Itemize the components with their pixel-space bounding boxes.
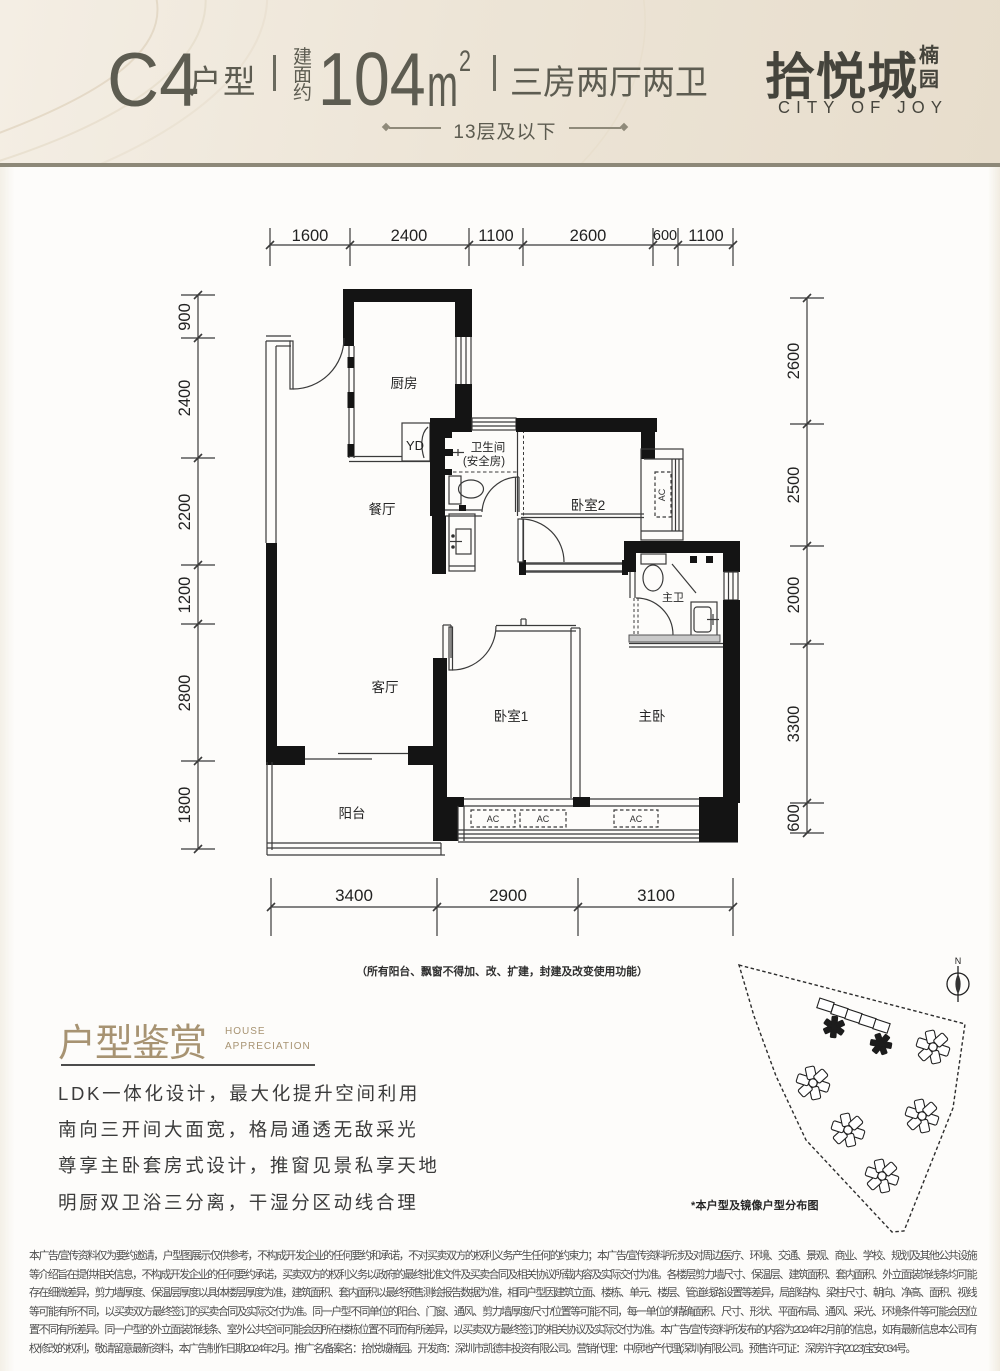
svg-text:AC: AC xyxy=(657,488,667,501)
svg-text:600: 600 xyxy=(785,804,803,832)
svg-text:1100: 1100 xyxy=(688,227,723,245)
svg-text:900: 900 xyxy=(176,303,194,331)
svg-text:2200: 2200 xyxy=(176,494,194,531)
svg-text:600: 600 xyxy=(653,228,677,244)
svg-text:1200: 1200 xyxy=(176,577,194,614)
svg-text:客厅: 客厅 xyxy=(372,679,399,695)
svg-text:2900: 2900 xyxy=(489,886,527,905)
svg-text:主卫: 主卫 xyxy=(662,591,684,604)
svg-text:3400: 3400 xyxy=(335,886,373,905)
svg-text:AC: AC xyxy=(487,814,500,824)
svg-text:阳台: 阳台 xyxy=(339,806,366,821)
svg-text:YD: YD xyxy=(406,438,424,453)
svg-text:1100: 1100 xyxy=(478,227,513,245)
svg-text:N: N xyxy=(955,956,962,966)
svg-text:3300: 3300 xyxy=(785,706,803,743)
svg-text:主卧: 主卧 xyxy=(639,709,666,724)
svg-text:(安全房): (安全房) xyxy=(463,454,505,468)
svg-text:AC: AC xyxy=(630,814,643,824)
svg-text:2500: 2500 xyxy=(785,467,803,504)
svg-text:2400: 2400 xyxy=(176,380,194,417)
svg-text:AC: AC xyxy=(537,814,550,824)
svg-text:2400: 2400 xyxy=(391,227,428,245)
svg-text:2600: 2600 xyxy=(570,227,607,245)
svg-text:2000: 2000 xyxy=(785,577,803,614)
svg-text:1600: 1600 xyxy=(292,227,329,245)
svg-text:1800: 1800 xyxy=(176,787,194,824)
svg-text:餐厅: 餐厅 xyxy=(369,502,396,517)
svg-text:3100: 3100 xyxy=(637,886,675,905)
svg-text:厨房: 厨房 xyxy=(391,376,418,391)
svg-text:卧室1: 卧室1 xyxy=(494,708,529,724)
svg-text:2600: 2600 xyxy=(785,343,803,380)
svg-text:2800: 2800 xyxy=(176,675,194,712)
svg-text:卫生间: 卫生间 xyxy=(471,440,506,454)
svg-text:卧室2: 卧室2 xyxy=(571,497,606,513)
